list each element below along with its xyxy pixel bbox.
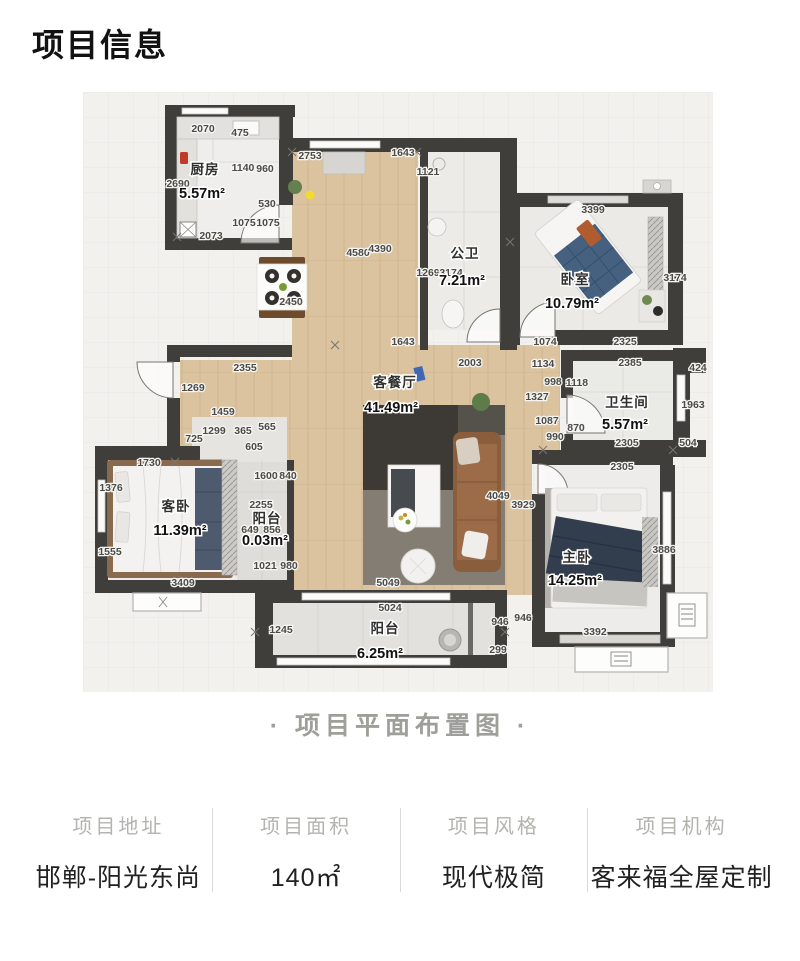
- dimension-label: 5049: [376, 577, 400, 589]
- room-name-label: 厨房: [191, 161, 220, 177]
- dimension-label: 1087: [535, 415, 559, 427]
- dimension-label: 725: [185, 433, 203, 445]
- room-name-label: 卫生间: [605, 394, 649, 410]
- dimension-label: 565: [258, 421, 276, 433]
- dimension-label: 3174: [663, 272, 687, 284]
- room-name-label: 客卧: [161, 498, 191, 514]
- floor-drain-icon: [180, 222, 196, 237]
- dimension-label: 504: [679, 437, 697, 449]
- info-label: 项目地址: [72, 810, 164, 839]
- dimension-label: 4049: [486, 490, 510, 502]
- info-col-style: 项目风格 现代极简: [401, 806, 588, 894]
- toilet-icon: [442, 300, 464, 328]
- dimension-label: 2305: [615, 437, 639, 449]
- dimension-label: 1074: [533, 336, 557, 348]
- dimension-label: 365: [234, 425, 252, 437]
- info-col-organization: 项目机构 客来福全屋定制: [588, 806, 775, 894]
- dimension-label: 1299: [202, 425, 226, 437]
- room-area-label: 10.79m²: [545, 296, 599, 312]
- dimension-label: 870: [567, 422, 585, 434]
- dimension-label: 2255: [249, 499, 273, 511]
- dimension-label: 299: [489, 644, 507, 656]
- dimension-label: 4390: [368, 243, 392, 255]
- info-col-area: 项目面积 140㎡: [213, 806, 400, 894]
- dimension-label: 1269: [416, 267, 440, 279]
- project-info-bar: 项目地址 邯郸-阳光东尚 项目面积 140㎡ 项目风格 现代极简 项目机构 客来…: [25, 806, 775, 894]
- plan-caption: · 项目平面布置图 ·: [0, 706, 800, 742]
- dimension-label: 840: [279, 470, 297, 482]
- info-col-address: 项目地址 邯郸-阳光东尚: [25, 806, 212, 894]
- room-area-label: 14.25m²: [548, 573, 602, 589]
- dimension-label: 1021: [253, 560, 277, 572]
- dimension-label: 1376: [99, 482, 123, 494]
- dimension-label: 1245: [269, 624, 293, 636]
- room-area-label: 41.49m²: [364, 400, 418, 416]
- floor-plan-image: 2070475269011409605301075107520732753458…: [83, 92, 713, 692]
- dimension-label: 3392: [583, 626, 607, 638]
- dimension-label: 946: [491, 616, 509, 628]
- dimension-label: 5024: [378, 602, 402, 614]
- dimension-label: 4580: [346, 247, 370, 259]
- bed-guest1: [107, 460, 233, 578]
- plant-icon: [472, 393, 490, 411]
- dimension-label: 3886: [652, 544, 676, 556]
- dimension-label: 1140: [232, 162, 255, 174]
- dimension-label: 1134: [532, 358, 555, 370]
- info-value: 客来福全屋定制: [591, 858, 773, 894]
- stove-icon: [180, 152, 188, 164]
- dimension-label: 1075: [256, 217, 280, 229]
- page-title: 项目信息: [32, 20, 168, 66]
- info-label: 项目风格: [448, 810, 540, 839]
- room-name-label: 阳台: [371, 620, 400, 636]
- dimension-label: 605: [245, 441, 263, 453]
- room-name-label: 阳台: [253, 510, 282, 526]
- room-name-label: 公卫: [451, 246, 480, 261]
- washing-machine-icon: [439, 629, 461, 651]
- dimension-label: 1459: [211, 406, 235, 418]
- dimension-label: 1600: [254, 470, 278, 482]
- dimension-label: 1327: [525, 391, 549, 403]
- room-area-label: 6.25m²: [357, 646, 403, 662]
- dimension-label: 2753: [298, 150, 322, 162]
- dimension-label: 960: [256, 163, 274, 175]
- dimension-label: 1121: [417, 166, 440, 178]
- dimension-label: 1118: [566, 377, 588, 389]
- room-name-label: 卧室: [561, 271, 590, 287]
- dimension-label: 1643: [391, 336, 415, 348]
- dimension-label: 980: [280, 560, 298, 572]
- ceiling-light-icon: [306, 191, 315, 200]
- room-area-label: 0.03m²: [242, 533, 288, 549]
- dimension-label: 3929: [511, 499, 535, 511]
- room-name-label: 客餐厅: [372, 374, 417, 390]
- room-name-label: 主卧: [563, 549, 592, 565]
- room-area-label: 7.21m²: [439, 273, 485, 289]
- dimension-label: 2305: [610, 461, 634, 473]
- dimension-label: 1269: [181, 382, 205, 394]
- sofa: [453, 432, 501, 572]
- info-label: 项目面积: [260, 810, 352, 839]
- info-value: 邯郸-阳光东尚: [36, 858, 201, 894]
- plant-icon: [288, 180, 302, 194]
- dimension-label: 2325: [613, 336, 637, 348]
- dimension-label: 1555: [98, 546, 122, 558]
- dimension-label: 2073: [199, 230, 223, 242]
- room-area-label: 5.57m²: [602, 417, 648, 433]
- dimension-label: 3409: [171, 577, 195, 589]
- dimension-label: 1963: [681, 399, 705, 411]
- dimension-label: 990: [546, 431, 564, 443]
- dimension-label: 2070: [191, 123, 215, 135]
- dimension-label: 1730: [137, 457, 161, 469]
- dimension-label: 3399: [581, 204, 605, 216]
- dimension-label: 1643: [391, 147, 415, 159]
- dimension-label: 475: [231, 127, 249, 139]
- dimension-label: 424: [689, 362, 707, 374]
- bed-master: [545, 488, 650, 608]
- room-area-label: 5.57m²: [179, 186, 225, 202]
- dimension-label: 2450: [279, 296, 303, 308]
- dimension-label: 946: [514, 612, 532, 624]
- info-value: 140㎡: [271, 858, 342, 894]
- info-label: 项目机构: [636, 810, 728, 839]
- dimension-label: 2355: [233, 362, 257, 374]
- dimension-label: 2003: [458, 357, 482, 369]
- info-value: 现代极简: [442, 858, 546, 894]
- dimension-label: 998: [544, 376, 562, 388]
- sink-icon: [428, 218, 446, 236]
- room-area-label: 11.39m²: [153, 523, 206, 539]
- floor-plan: 2070475269011409605301075107520732753458…: [83, 92, 713, 692]
- dimension-label: 2385: [618, 357, 642, 369]
- dimension-label: 530: [258, 198, 276, 210]
- dimension-label: 1075: [232, 217, 256, 229]
